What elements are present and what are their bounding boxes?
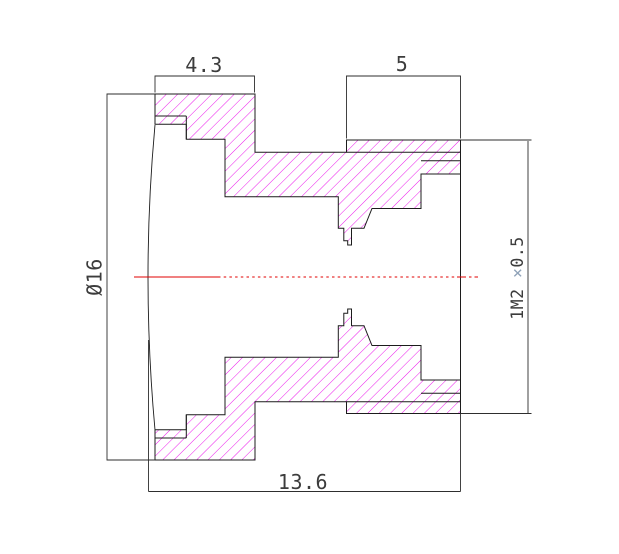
thread-spec-suffix: 0.5 — [508, 236, 527, 267]
dimension-flange-width-lines — [155, 76, 255, 93]
hatched-section-top-half — [155, 94, 461, 245]
hatched-section-bottom-half — [155, 309, 461, 460]
multiply-sign: × — [508, 268, 527, 278]
technical-drawing-canvas: 4.3 5 Ø16 1M2 ×0.5 13.6 — [0, 0, 619, 554]
dimension-thread-spec-label: 1M2 ×0.5 — [508, 236, 527, 320]
drawing-sheet: 4.3 5 Ø16 1M2 ×0.5 13.6 — [0, 0, 619, 554]
dimension-thread-length-lines — [347, 76, 461, 139]
dimension-flange-width-label: 4.3 — [185, 53, 223, 77]
dimension-thread-length-label: 5 — [396, 52, 409, 76]
thread-spec-prefix: 1M2 — [508, 278, 527, 320]
dimension-flange-width: 4.3 — [155, 53, 255, 93]
dimension-thread-length: 5 — [347, 52, 461, 139]
dimension-outer-diameter-label: Ø16 — [83, 258, 107, 296]
dimension-total-length-label: 13.6 — [278, 470, 328, 494]
